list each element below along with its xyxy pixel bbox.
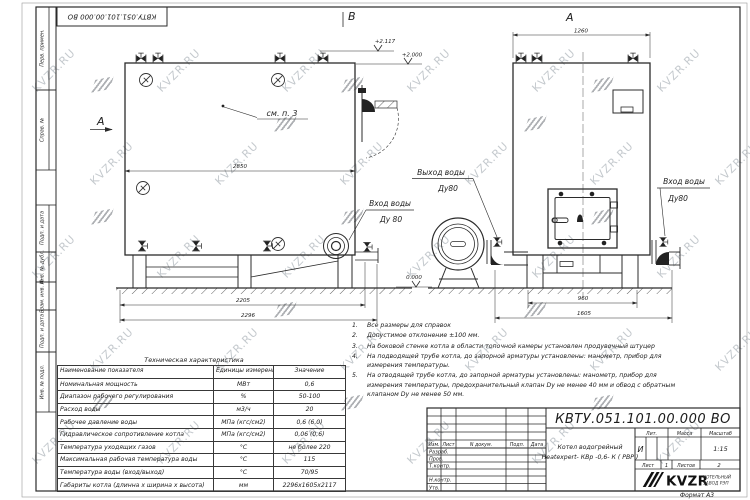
note-item: 4.На подводящей трубе котла, до запорной… [352, 352, 682, 371]
boiler-front-view: 1260 [495, 29, 710, 324]
spec-cell: 70/95 [274, 466, 346, 479]
spec-cell: % [214, 391, 274, 404]
door-latch [577, 215, 583, 223]
sign-row-label: Т.контр. [429, 464, 451, 470]
dim-front-base1: 960 [578, 296, 589, 302]
spec-header-row: Наименование показателя Единицы измерени… [58, 366, 346, 379]
rev-header: Дата [530, 442, 543, 448]
side-base-frame [133, 255, 352, 288]
mass-label: Масса [677, 431, 692, 437]
spec-row: Гидравлическое сопротивление котлаМПа (к… [58, 428, 346, 441]
lit-value: И [638, 445, 644, 454]
outlet-pipe-assembly [487, 238, 528, 265]
notes-block: 1.Все размеры для справок2.Допустимое от… [352, 321, 682, 400]
callout-see-note-3: см. п. 3 [267, 109, 298, 118]
blower-fan [428, 218, 672, 294]
spec-cell: 50-100 [274, 391, 346, 404]
dim-side-width: 2850 [233, 164, 247, 170]
spec-cell: Расход воды [58, 403, 214, 416]
dim-side-base2: 2296 [241, 313, 255, 319]
furnace-door [548, 189, 618, 248]
level-mark-2000: +2.000 [402, 53, 423, 59]
front-base-frame [527, 255, 638, 288]
door-handle [552, 218, 568, 223]
top-stamp-designation: КВТУ.051.101.00.000 ВО [67, 13, 156, 21]
sheet-value: 1 [665, 463, 668, 469]
frame-field-label: Взам. инв. № [40, 279, 46, 313]
format-note: Формат А3 [680, 492, 714, 499]
spec-row: Диапазон рабочего регулирования%50-100 [58, 391, 346, 404]
spec-cell: 20 [274, 403, 346, 416]
note-number: 4. [352, 352, 367, 371]
view-markers: А В А [90, 10, 574, 130]
lit-label: Лит. [645, 431, 657, 437]
note-text: На подводящей трубе котла, до запорной а… [367, 352, 682, 371]
spec-row: Рабочее давление водыМПа (кгс/см2)0,6 (6… [58, 416, 346, 429]
note-item: 1.Все размеры для справок [352, 321, 682, 330]
sheets-value: 2 [717, 463, 720, 469]
spec-cell: Габариты котла (длинна х ширина х высота… [58, 479, 214, 492]
frame-left-labels: Перв. примен. Справ. № Подп. и дата Инв.… [40, 29, 46, 399]
revision-headers: Изм. Лист N докум. Подп. Дата [428, 442, 543, 448]
spec-cell: м3/ч [214, 403, 274, 416]
dim-front-base2: 1605 [577, 311, 591, 317]
sheets-label: Листов [676, 463, 695, 469]
note-number: 3. [352, 342, 367, 351]
spec-header-value: Значение [274, 366, 346, 379]
note-number: 5. [352, 371, 367, 399]
note-number: 1. [352, 321, 367, 330]
spec-cell: °С [214, 466, 274, 479]
spec-cell: Температура воды (вход/выход) [58, 466, 214, 479]
designation: КВТУ.051.101.00.000 ВО [555, 412, 731, 427]
spec-row: Температура уходящих газов°Сне более 220 [58, 441, 346, 454]
note-item: 2.Допустимое отклонение ±100 мм. [352, 331, 682, 340]
spec-row: Температура воды (вход/выход)°С70/95 [58, 466, 346, 479]
spec-cell: 0,6 [274, 378, 346, 391]
frame-field-label: Справ. № [40, 118, 46, 142]
sign-row-label: Н.контр. [429, 478, 451, 484]
spec-cell: Максимальная рабочая температура воды [58, 454, 214, 467]
view-label-a-right: А [565, 11, 574, 24]
spec-cell: °С [214, 441, 274, 454]
rev-header: Изм. [428, 442, 439, 448]
rev-header: Лист [441, 442, 454, 448]
view-marker-a-left: А [96, 115, 105, 128]
frame-field-label: Инв. № подл. [40, 365, 46, 400]
inlet-pipe-assembly [652, 238, 680, 269]
spec-cell: °С [214, 454, 274, 467]
dim-side-base1: 2205 [236, 298, 250, 304]
inlet-right-label-line1: Вход воды [663, 177, 705, 186]
inlet-right-label-line2: Ду80 [667, 194, 688, 203]
outlet-label-line2: Ду80 [437, 184, 458, 193]
frame-field-label: Перв. примен. [40, 29, 46, 67]
sign-row-label: Утв. [429, 486, 440, 492]
kvzr-logo: KVZR КОТЕЛЬНЫЙ ЗАВОД РЭП [641, 472, 731, 490]
title-block: Изм. Лист N докум. Подп. Дата Разраб. Пр… [427, 408, 740, 499]
boiler-side-view: 2850 см. п. 3 +2.117 +2.000 Выход воды [116, 39, 497, 323]
spec-cell: не более 220 [274, 441, 346, 454]
company-name-line1: КОТЕЛЬНЫЙ [703, 474, 732, 481]
spec-header-name: Наименование показателя [58, 366, 214, 379]
scale-value: 1:15 [713, 445, 728, 453]
inlet-left-label-line2: Ду 80 [379, 215, 402, 224]
dim-front-width: 1260 [574, 29, 588, 35]
rev-header: N докум. [470, 442, 492, 448]
spec-cell: МПа (кгс/см2) [214, 428, 274, 441]
spec-cell: МПа (кгс/см2) [214, 416, 274, 429]
spec-row: Габариты котла (длинна х ширина х высота… [58, 479, 346, 492]
sign-row-label: Пров. [429, 457, 444, 463]
spec-cell: Гидравлическое сопротивление котла [58, 428, 214, 441]
spec-row: Максимальная рабочая температура воды°С1… [58, 454, 346, 467]
scale-label: Масштаб [709, 431, 732, 437]
note-text: Все размеры для справок [367, 321, 682, 330]
spec-row: Расход водым3/ч20 [58, 403, 346, 416]
kvzr-logo-stripes-icon [641, 472, 664, 487]
control-panel [613, 90, 643, 113]
note-text: На боковой стенке котла в области топочн… [367, 342, 682, 351]
spec-cell: МВт [214, 378, 274, 391]
level-mark-2117: +2.117 [375, 39, 396, 45]
side-door-detail [358, 85, 398, 158]
spec-cell: Диапазон рабочего регулирования [58, 391, 214, 404]
note-text: На отводящей трубе котла, до запорной ар… [367, 371, 682, 399]
rev-header: Подп. [510, 442, 525, 448]
drawing-sheet: KVZR.RUKVZR.RUKVZR.RUKVZR.RUKVZR.RUKVZR.… [0, 0, 750, 500]
sheet-label: Лист [641, 463, 654, 469]
outlet-label-line1: Выход воды [417, 168, 465, 177]
ground-hatch-right [428, 289, 672, 295]
spec-cell: Рабочее давление воды [58, 416, 214, 429]
spec-table-title: Техническая характеристика [57, 356, 331, 365]
spec-cell: Температура уходящих газов [58, 441, 214, 454]
product-name-line2: Heatexpert- КВр -0,6- К ( РВР ) [542, 453, 639, 461]
signature-rows: Разраб. Пров. Т.контр. Н.контр. Утв. [429, 450, 451, 492]
note-item: 3.На боковой стенке котла в области топо… [352, 342, 682, 351]
note-text: Допустимое отклонение ±100 мм. [367, 331, 682, 340]
spec-row: Номинальная мощностьМВт0,6 [58, 378, 346, 391]
product-name-line1: Котел водогрейный [558, 444, 623, 451]
spec-cell: 0,6 (6,0) [274, 416, 346, 429]
inlet-left-label-line1: Вход воды [369, 199, 411, 208]
spec-cell: 115 [274, 454, 346, 467]
note-number: 2. [352, 331, 367, 340]
frame-field-label: Подп. и дата [40, 314, 46, 348]
ground-hatch-left [116, 289, 412, 295]
view-marker-b: В [348, 10, 356, 23]
frame-field-label: Инв. № дубл. [40, 250, 46, 284]
company-name-line2: ЗАВОД РЭП [703, 481, 729, 487]
spec-table: Техническая характеристика Наименование … [57, 356, 331, 492]
level-mark-zero: 0.000 [406, 275, 422, 281]
note-item: 5.На отводящей трубе котла, до запорной … [352, 371, 682, 399]
spec-table-grid: Наименование показателя Единицы измерени… [57, 365, 346, 492]
sign-row-label: Разраб. [429, 450, 449, 456]
spec-cell: мм [214, 479, 274, 492]
spec-cell: 0,06 (0,6) [274, 428, 346, 441]
spec-header-unit: Единицы измерения [214, 366, 274, 379]
spec-cell: 2296х1605х2117 [274, 479, 346, 492]
frame-field-label: Подп. и дата [40, 211, 46, 245]
spec-cell: Номинальная мощность [58, 378, 214, 391]
